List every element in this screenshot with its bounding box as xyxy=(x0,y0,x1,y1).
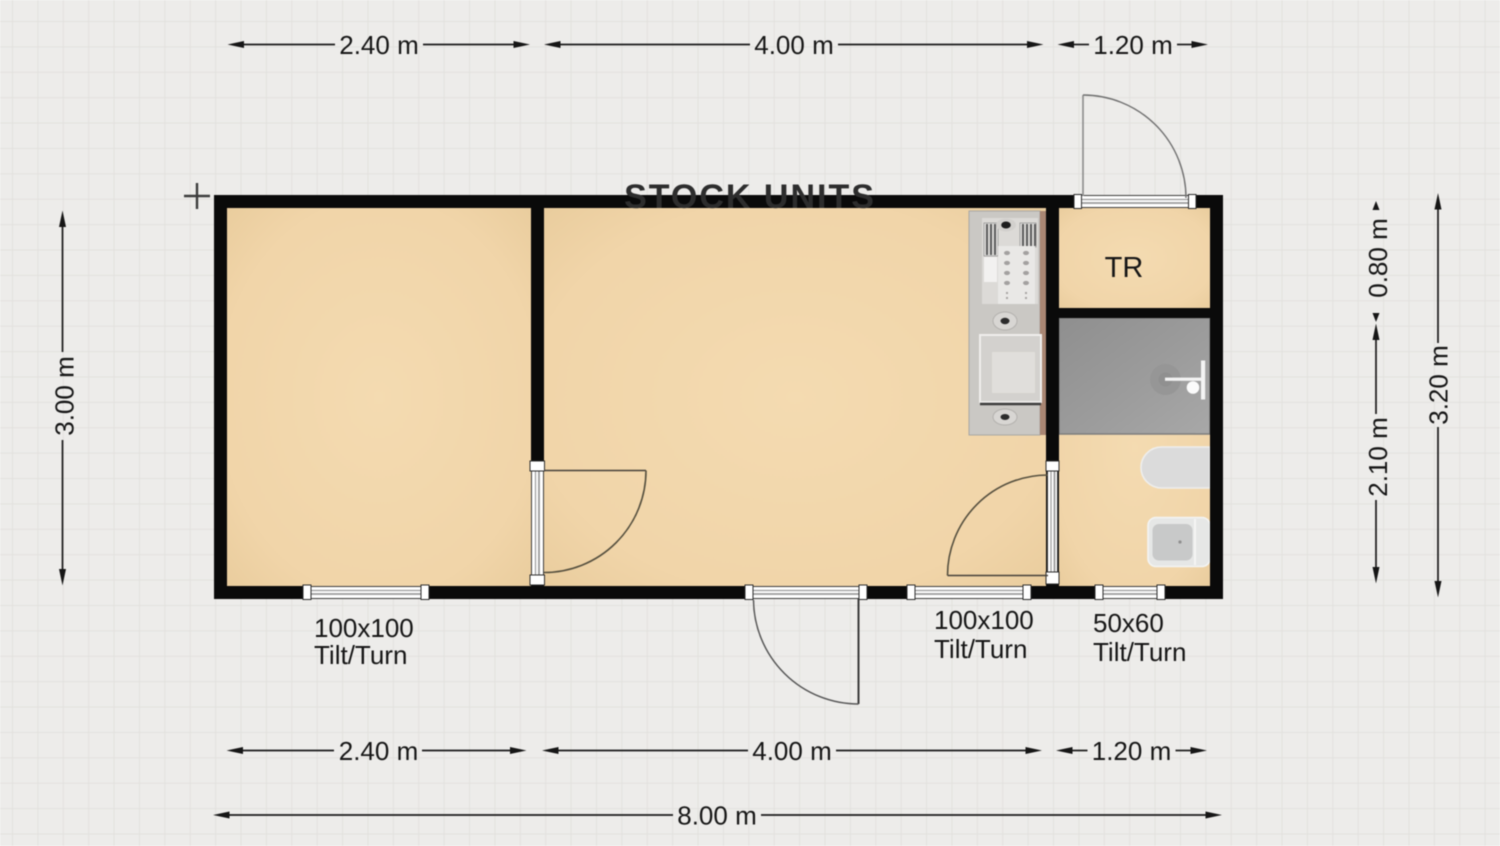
svg-text:3.20 m: 3.20 m xyxy=(1424,345,1454,425)
svg-text:4.00 m: 4.00 m xyxy=(754,30,834,60)
svg-text:2.10 m: 2.10 m xyxy=(1363,417,1393,497)
svg-text:2.40 m: 2.40 m xyxy=(339,736,419,766)
svg-text:100x100: 100x100 xyxy=(314,613,414,643)
svg-text:4.00 m: 4.00 m xyxy=(752,736,832,766)
svg-text:TR: TR xyxy=(1105,252,1144,284)
svg-text:50x60: 50x60 xyxy=(1093,608,1164,638)
svg-text:2.40 m: 2.40 m xyxy=(339,30,419,60)
svg-text:100x100: 100x100 xyxy=(934,605,1034,635)
svg-text:3.00 m: 3.00 m xyxy=(50,356,80,436)
svg-text:8.00 m: 8.00 m xyxy=(677,801,757,831)
svg-text:STOCK UNITS: STOCK UNITS xyxy=(624,178,876,216)
svg-text:1.20 m: 1.20 m xyxy=(1092,736,1172,766)
svg-text:0.80 m: 0.80 m xyxy=(1363,218,1393,298)
svg-text:Tilt/Turn: Tilt/Turn xyxy=(314,640,407,670)
svg-text:Tilt/Turn: Tilt/Turn xyxy=(934,634,1027,664)
svg-text:1.20 m: 1.20 m xyxy=(1093,30,1173,60)
svg-text:Tilt/Turn: Tilt/Turn xyxy=(1093,637,1186,667)
